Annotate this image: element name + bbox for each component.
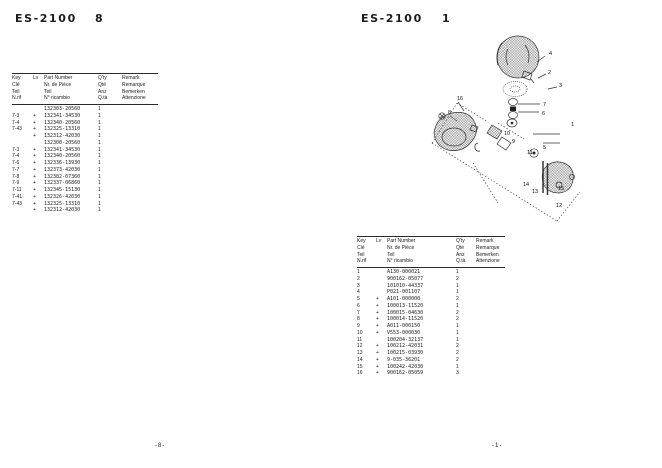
diagram-callout-15: 15 [558, 186, 564, 192]
header-cell-remark: Remark Remarque Bemerken Attenzione [122, 75, 158, 102]
header-cell-qty: Q'ty Qté Anz Q.tà [93, 75, 122, 102]
cell-lv: + [374, 330, 387, 337]
header-cell-remark: Remark Remarque Bemerken Attenzione [476, 238, 505, 265]
parts-table-left: Key Clé Teil N.rif Lv Part Number Nr. de… [12, 73, 158, 214]
diagram-callout-11: 11 [527, 150, 533, 156]
header-cell-part-number: Part Number Nr. de Pièce Teil N° ricambi… [44, 75, 93, 102]
diagram-callout-8: 8 [448, 110, 451, 116]
parts-table-right-body: 1A130-00002112900162-0507723101010-44337… [357, 268, 505, 377]
diagram-callout-13: 13 [532, 189, 538, 195]
table-row: +132312-420301 [12, 133, 158, 140]
table-row: 7-3+132341-345301 [12, 147, 158, 154]
parts-table-left-body: 132303-2056017-3+132341-3453017-4+132340… [12, 105, 158, 214]
table-row: 11100204-321371 [357, 337, 505, 344]
cell-part: 132312-42030 [44, 207, 93, 214]
exploded-parts-diagram: 12345678910111213141516 [412, 25, 587, 235]
table-row: 8+100014-115202 [357, 316, 505, 323]
table-row: 7-43+132325-133101 [12, 201, 158, 208]
table-row: 7-3+132341-345301 [12, 113, 158, 120]
table-row: 7-41+132326-420301 [12, 194, 158, 201]
table-row: 10+V553-0000301 [357, 330, 505, 337]
table-row: 13+100215-039302 [357, 350, 505, 357]
table-row: 16+900162-050593 [357, 370, 505, 377]
table-row: 5+A101-0000002 [357, 296, 505, 303]
right-page-title: ES-2100 [361, 12, 423, 25]
cell-key: 16 [357, 370, 374, 377]
table-row: 7-6+132336-139301 [12, 160, 158, 167]
left-page-title: ES-2100 [15, 12, 77, 25]
table-row: 12+100212-420312 [357, 343, 505, 350]
table-row: 15+100242-420301 [357, 364, 505, 371]
header-cell-key: Key Clé Teil N.rif [357, 238, 374, 265]
table-row: 7-43+132325-133101 [12, 126, 158, 133]
table-row: 132300-205601 [12, 140, 158, 147]
table-row: 4P021-0011071 [357, 289, 505, 296]
cell-qty: 3 [451, 370, 476, 377]
diagram-callout-2: 2 [548, 70, 551, 76]
diagram-callout-14: 14 [523, 182, 529, 188]
diagram-callout-5: 5 [543, 145, 546, 151]
parts-table-left-header: Key Clé Teil N.rif Lv Part Number Nr. de… [12, 74, 158, 105]
cell-qty: 1 [93, 207, 122, 214]
diagram-callout-16: 16 [457, 96, 463, 102]
diagram-callout-1: 1 [571, 122, 574, 128]
parts-table-right-header: Key Clé Teil N.rif Lv Part Number Nr. de… [357, 237, 505, 268]
table-row: 7-9+132337-068601 [12, 180, 158, 187]
right-page-section-number: 1 [442, 12, 450, 25]
table-row: 7-11+132345-151301 [12, 187, 158, 194]
diagram-callout-3: 3 [559, 83, 562, 89]
table-row: 14+9-035-362012 [357, 357, 505, 364]
cell-lv: + [31, 133, 44, 140]
header-cell-key: Key Clé Teil N.rif [12, 75, 31, 102]
left-page-footer: -8- [155, 443, 165, 449]
diagram-callout-7: 7 [543, 102, 546, 108]
diagram-callout-10: 10 [504, 131, 510, 137]
diagram-callout-4: 4 [549, 51, 552, 57]
diagram-callout-6: 6 [542, 111, 545, 117]
table-row: 7-4+132340-205601 [12, 120, 158, 127]
catalog-spread: ES-2100 8 ES-2100 1 Key Clé Teil N.rif L… [0, 0, 662, 468]
diagram-callout-12: 12 [556, 203, 562, 209]
header-cell-lv: Lv [31, 75, 44, 102]
table-row: 7-8+132382-073601 [12, 174, 158, 181]
table-row: 7+100015-046302 [357, 310, 505, 317]
cell-key: 7-43 [12, 201, 31, 208]
header-cell-part-number: Part Number Nr. de Pièce Teil N° ricambi… [387, 238, 451, 265]
table-row: 2900162-050772 [357, 276, 505, 283]
diagram-shapes [432, 36, 580, 221]
diagram-callout-9: 9 [512, 139, 515, 145]
header-cell-qty: Q'ty Qté Anz Q.tà [451, 238, 476, 265]
right-page-footer: -1- [492, 443, 502, 449]
table-row: 3101010-443371 [357, 283, 505, 290]
cell-lv: + [31, 207, 44, 214]
header-cell-lv: Lv [374, 238, 387, 265]
left-page-section-number: 8 [95, 12, 103, 25]
table-row: 9+A011-0001501 [357, 323, 505, 330]
cell-lv: + [374, 370, 387, 377]
table-row: 1A130-0000211 [357, 269, 505, 276]
table-row: 7-4+132340-205601 [12, 153, 158, 160]
parts-table-right: Key Clé Teil N.rif Lv Part Number Nr. de… [357, 236, 505, 377]
table-row: 132303-205601 [12, 106, 158, 113]
cell-part: 900162-05059 [387, 370, 451, 377]
table-row: +132312-420301 [12, 207, 158, 214]
cell-key: 7-43 [12, 126, 31, 133]
table-row: 7-7+132373-420301 [12, 167, 158, 174]
table-row: 6+100013-115201 [357, 303, 505, 310]
